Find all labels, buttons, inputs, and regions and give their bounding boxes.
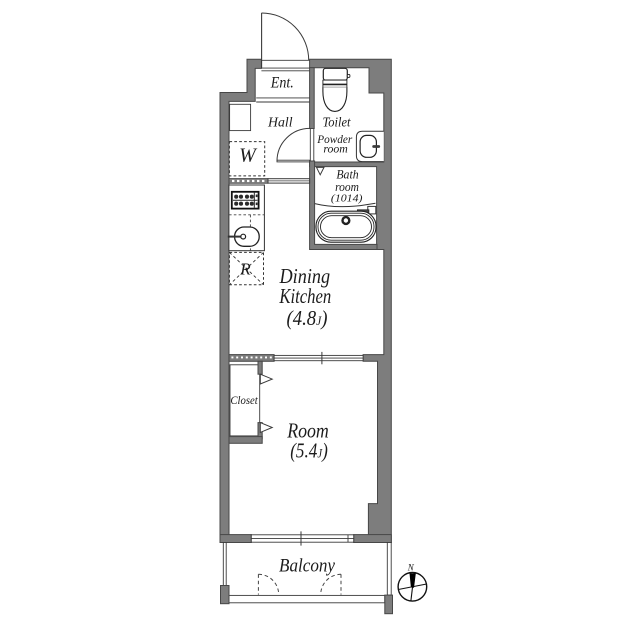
svg-text:R: R <box>239 260 251 279</box>
svg-text:W: W <box>239 145 258 167</box>
svg-text:(4.8J): (4.8J) <box>287 306 328 330</box>
svg-text:Kitchen: Kitchen <box>279 284 332 308</box>
svg-text:(5.4J): (5.4J) <box>290 438 328 462</box>
svg-text:N: N <box>407 563 415 573</box>
svg-text:(1014): (1014) <box>331 194 363 205</box>
svg-text:room: room <box>335 180 359 194</box>
svg-text:Toilet: Toilet <box>323 114 352 129</box>
svg-text:Balcony: Balcony <box>279 555 335 576</box>
svg-text:Ent.: Ent. <box>270 75 294 92</box>
svg-text:room: room <box>323 142 348 156</box>
svg-text:Hall: Hall <box>267 114 293 129</box>
svg-text:Closet: Closet <box>230 395 258 407</box>
